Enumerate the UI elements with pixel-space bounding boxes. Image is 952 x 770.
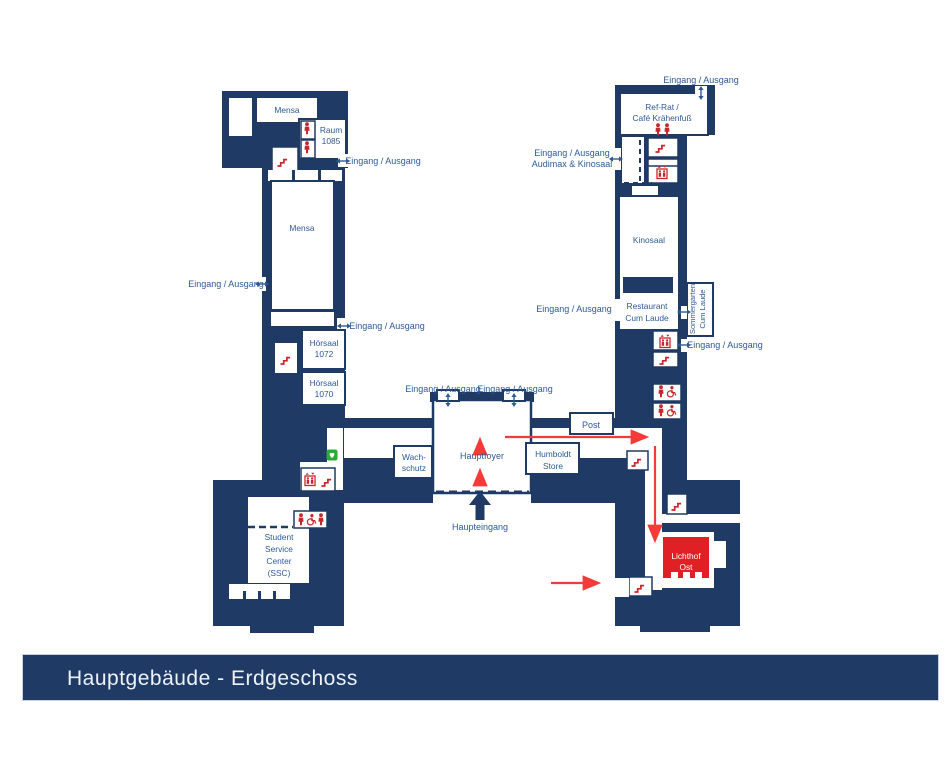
entrance-label: Audimax & Kinosaal [532,159,613,169]
wall-tick [243,591,246,599]
room-label: Sommergarten [688,284,697,334]
page-title: Hauptgebäude - Erdgeschoss [67,667,358,690]
main-entrance-arrow-icon [469,491,491,520]
wall-notch [695,572,702,578]
room-label: schutz [402,463,426,473]
room-label: Ost [679,562,693,572]
room-label: Hörsaal [310,338,339,348]
building-block [250,626,314,633]
room-label: Mensa [274,105,299,115]
wall-tick [258,591,261,599]
entrance-label: Eingang / Ausgang [405,384,481,394]
entrance-gap [612,578,629,597]
room-unlabeled [228,97,253,137]
stairwell [667,494,687,514]
stage [623,277,673,293]
entrance-label: Eingang / Ausgang [349,321,425,331]
wall-notch [683,572,690,578]
room-label: Cum Laude [698,289,707,328]
entrance-label: Eingang / Ausgang [477,384,553,394]
room-label: Humboldt [535,449,572,459]
aed-icon [327,450,338,461]
room-label: 1085 [322,136,341,146]
entrance-label: Eingang / Ausgang [345,156,421,166]
room-label: 1072 [315,349,334,359]
room-label: Store [543,461,563,471]
corridor [662,514,740,523]
room-label: Kinosaal [633,235,665,245]
room-hauptfoyer [433,400,531,493]
room-wachschutz [394,446,432,478]
corridor [271,312,334,326]
room-label: 1070 [315,389,334,399]
room-label: Hörsaal [310,378,339,388]
room-label: Student [265,532,295,542]
room-label: Cum Laude [625,313,669,323]
wc-room [653,403,681,419]
elevator-room [648,159,678,183]
room-label: Post [582,420,601,430]
room-label: Center [266,556,291,566]
room-label: Ref-Rat / [645,102,679,112]
corridor [712,541,726,568]
floorplan-page: Mensa Raum 1085 Eingang / Ausgang Eingan… [0,0,952,770]
wc-room [653,384,681,401]
stairwell [274,342,298,374]
entrance-label: Eingang / Ausgang [534,148,610,158]
room-label: Wach- [402,452,426,462]
building-block [640,626,710,632]
main-entrance-label: Haupteingang [452,522,508,532]
door-gap [632,186,658,196]
wall-tick [292,170,295,181]
stairwell [648,138,678,157]
room-label: Lichthof [671,551,701,561]
room-label: (SSC) [268,568,291,578]
room-label: Restaurant [627,301,669,311]
entrance-label: Eingang / Ausgang [188,279,264,289]
room-label: Service [265,544,293,554]
entrance-gap [612,299,621,321]
floor-title-bar: Hauptgebäude - Erdgeschoss [22,654,939,701]
room-label: Raum [320,125,342,135]
entrance-label: Eingang / Ausgang [687,340,763,350]
room-mensa-main [271,181,334,310]
entrance-label: Eingang / Ausgang [663,75,739,85]
room-label: Café Krähenfuß [632,113,691,123]
corridor [268,170,342,181]
wall-tick [273,591,276,599]
room-label: Mensa [289,223,314,233]
room-label: Hauptfoyer [460,451,504,461]
wall-notch [671,572,678,578]
wall-tick [318,170,321,181]
entrance-label: Eingang / Ausgang [536,304,612,314]
